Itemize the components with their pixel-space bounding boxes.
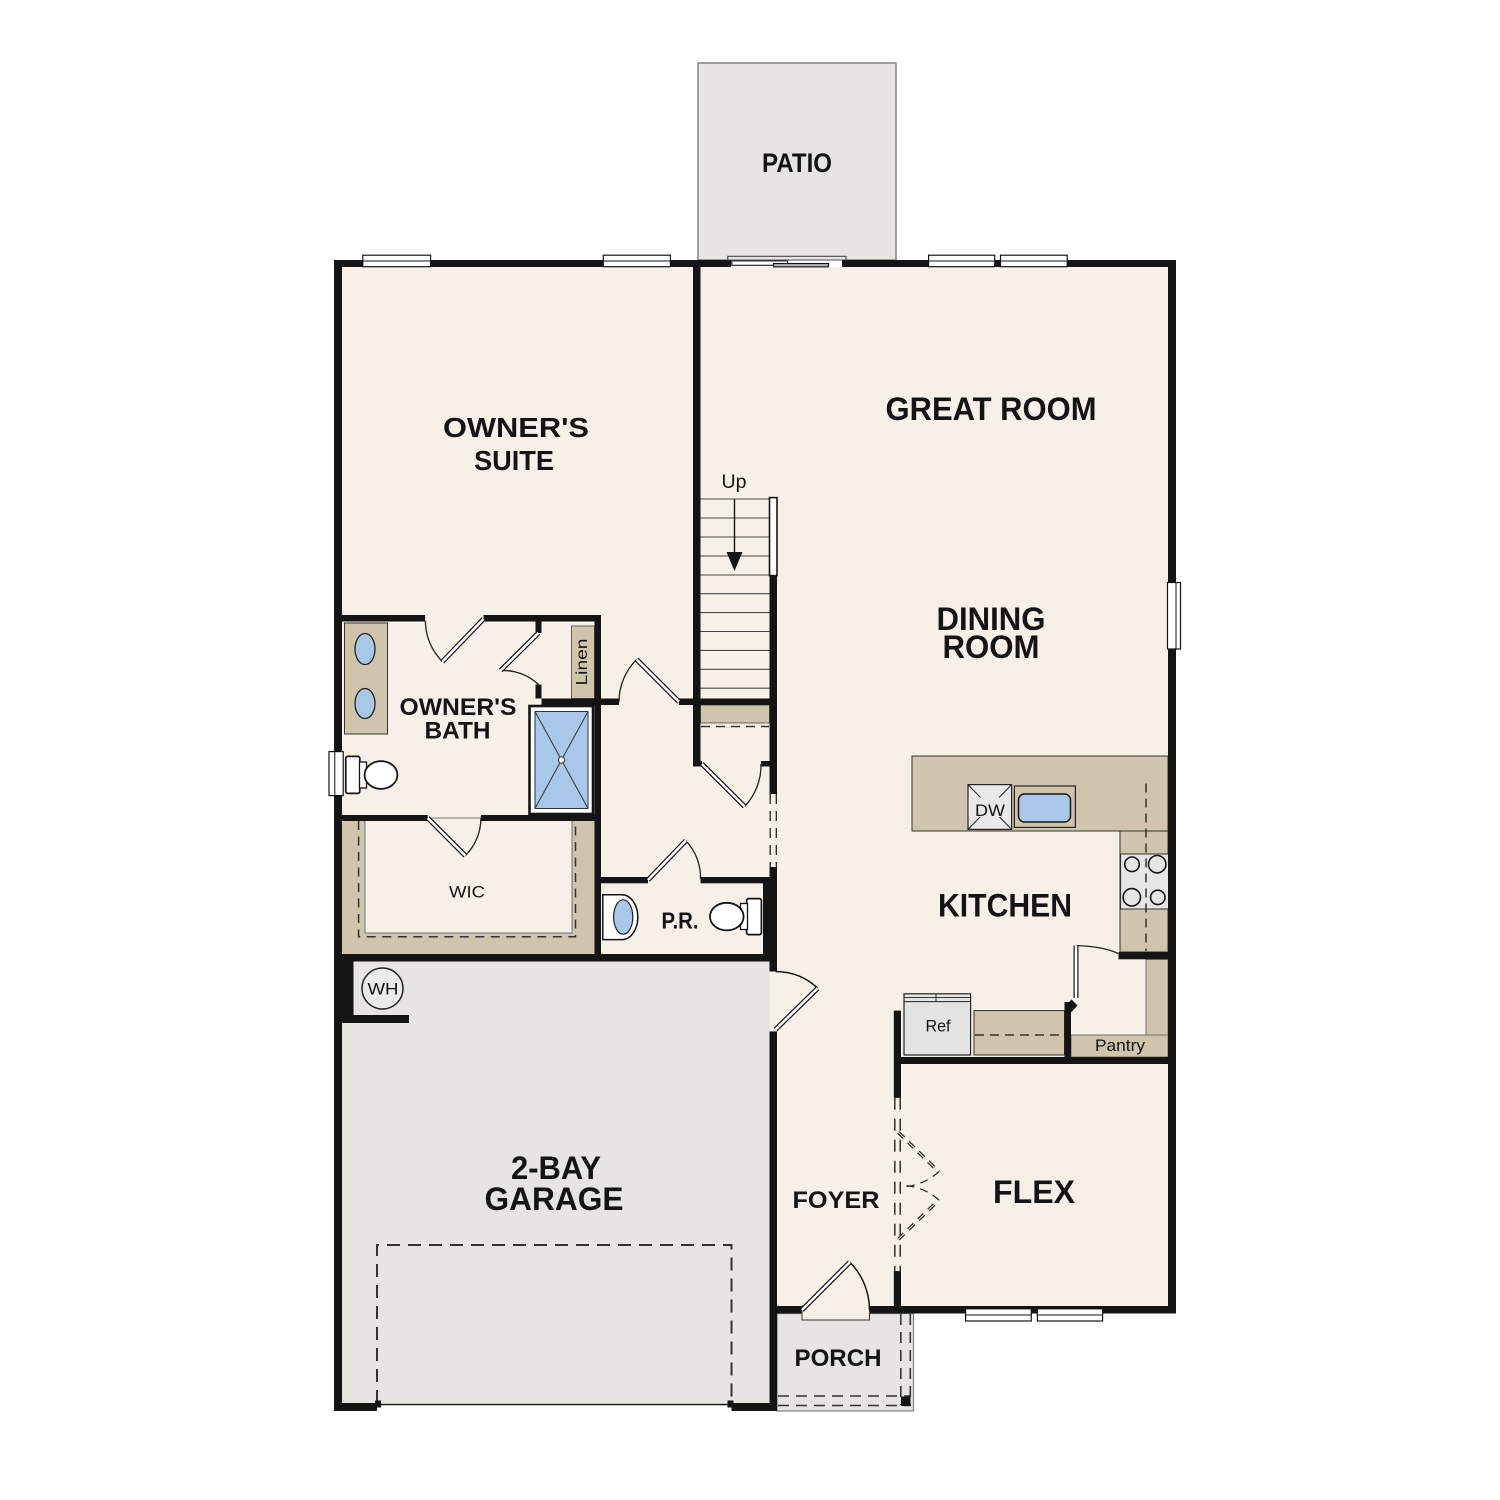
svg-text:SUITE: SUITE <box>474 445 554 476</box>
svg-text:WH: WH <box>368 980 399 999</box>
svg-text:FOYER: FOYER <box>793 1187 880 1214</box>
svg-text:GREAT ROOM: GREAT ROOM <box>886 391 1097 427</box>
svg-text:BATH: BATH <box>425 718 491 745</box>
svg-text:Pantry: Pantry <box>1095 1036 1146 1055</box>
svg-text:FLEX: FLEX <box>993 1174 1076 1210</box>
svg-text:DW: DW <box>975 802 1005 820</box>
svg-text:WIC: WIC <box>449 884 485 902</box>
svg-text:OWNER'S: OWNER'S <box>443 412 589 443</box>
svg-text:KITCHEN: KITCHEN <box>938 888 1072 924</box>
svg-text:PORCH: PORCH <box>795 1345 882 1372</box>
svg-text:GARAGE: GARAGE <box>485 1181 624 1217</box>
svg-text:Up: Up <box>722 472 747 493</box>
svg-text:ROOM: ROOM <box>943 629 1040 665</box>
svg-text:Ref: Ref <box>926 1018 951 1036</box>
svg-text:Linen: Linen <box>574 639 591 686</box>
svg-text:P.R.: P.R. <box>662 908 699 934</box>
svg-text:PATIO: PATIO <box>762 148 832 178</box>
